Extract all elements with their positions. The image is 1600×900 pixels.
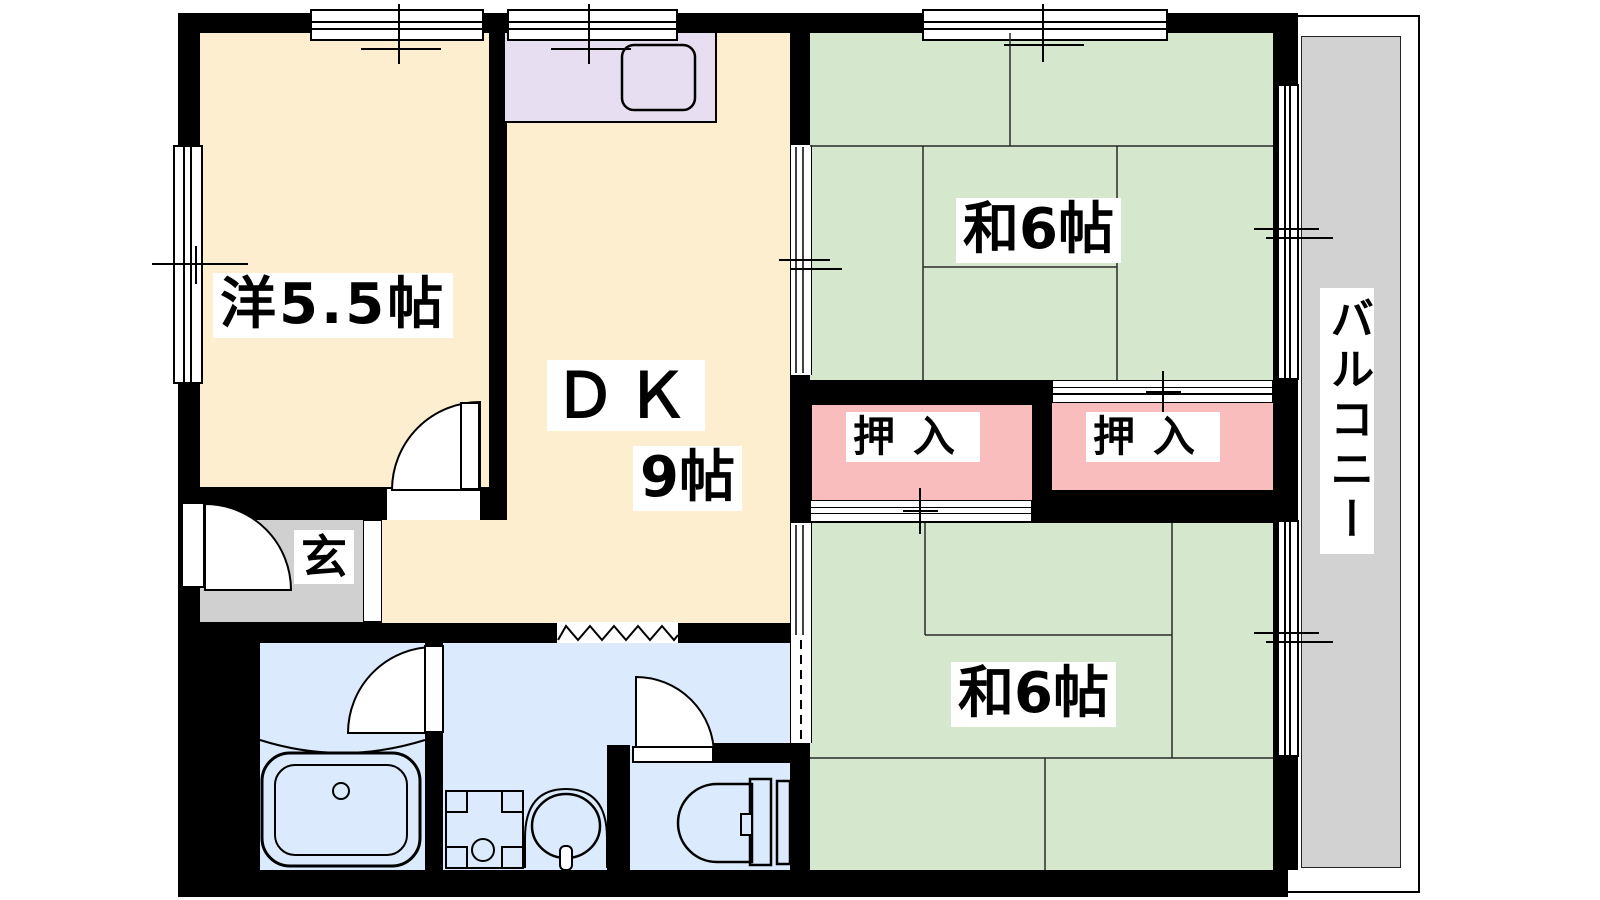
- window-western-left: [173, 145, 203, 384]
- accordion-door-bg: [557, 622, 678, 643]
- label-tatami-south: 和6帖: [951, 662, 1116, 727]
- label-western-room: 洋5.5帖: [213, 273, 453, 338]
- label-entrance: 玄: [294, 530, 354, 584]
- window-tatami-north-balcony: [1277, 84, 1299, 380]
- label-closet-west: 押入: [846, 412, 980, 462]
- bathroom-floor: [260, 643, 425, 870]
- window-kitchen-top: [507, 9, 678, 41]
- closet-east-sliding-door: [1052, 380, 1273, 403]
- dk-tatami-north-sliding-door: [790, 145, 812, 375]
- room-western-floor: [200, 33, 489, 487]
- western-door-leaf: [460, 402, 480, 490]
- closet-west-sliding-door: [810, 500, 1032, 522]
- label-dk-size: 9帖: [633, 446, 742, 511]
- kitchen-counter: [505, 33, 717, 123]
- entrance-dk-door: [363, 520, 382, 622]
- label-dk: ＤＫ: [547, 360, 705, 431]
- room-dk-floor-lower: [382, 520, 507, 623]
- toilet-door-leaf: [632, 746, 714, 763]
- dk-tatami-south-sliding-door: [790, 523, 812, 637]
- toilet-wall-top: [712, 743, 812, 763]
- toilet-wall-left: [607, 745, 630, 870]
- window-tatami-north-top: [922, 9, 1168, 41]
- label-closet-east: 押入: [1086, 412, 1220, 462]
- label-balcony: バルコニー: [1320, 288, 1374, 554]
- window-tatami-south-balcony: [1277, 520, 1299, 757]
- bathroom-door-leaf: [424, 645, 444, 733]
- western-door-opening: [387, 489, 480, 520]
- window-western-top: [310, 9, 484, 41]
- label-tatami-north: 和6帖: [956, 198, 1121, 263]
- floor-plan: 洋5.5帖 ＤＫ 9帖 和6帖 和6帖 押入 押入 玄 バルコニー: [0, 0, 1600, 900]
- entrance-door-leaf: [181, 502, 205, 588]
- washroom-tatami-partition: [790, 637, 812, 743]
